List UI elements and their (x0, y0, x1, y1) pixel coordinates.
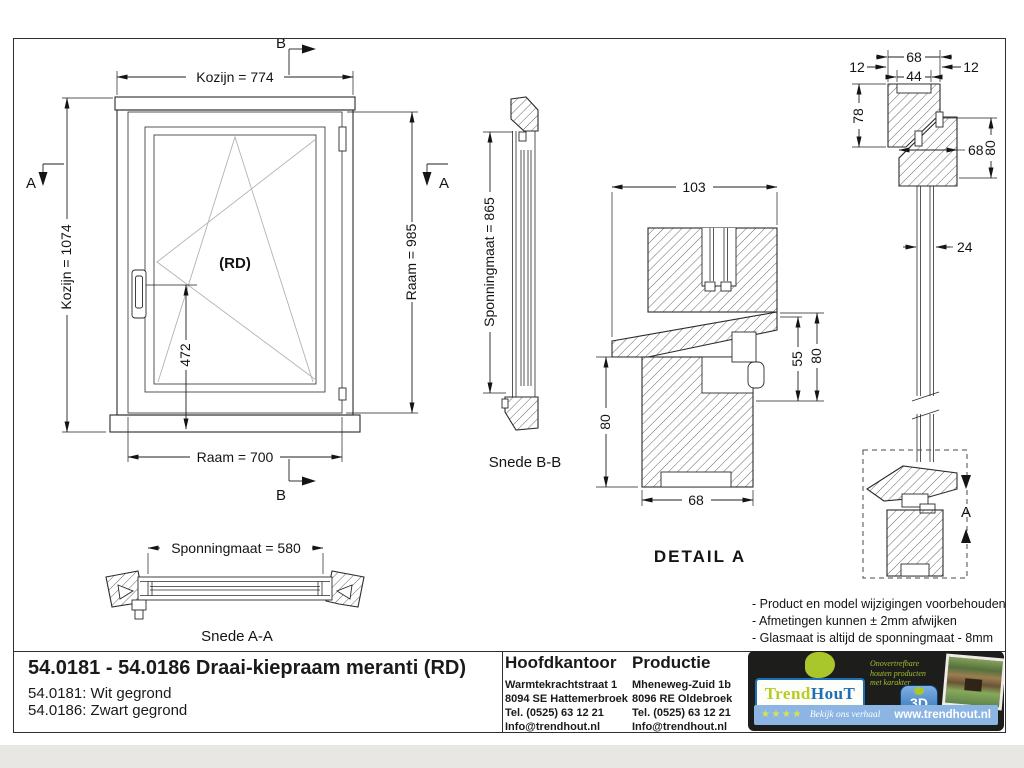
bottom-gray-strip (0, 745, 1024, 768)
production-phone: Tel. (0525) 63 12 21 (632, 706, 732, 720)
rating-stars-icon: ★★★★ (761, 710, 803, 720)
office-email: Info@trendhout.nl (505, 720, 628, 734)
office-city: 8094 SE Hattemerbroek (505, 692, 628, 706)
variant-wit-gegrond: 54.0181: Wit gegrond (28, 685, 171, 702)
drawing-sheet: (RD) Kozijn = 774 B Kozijn = 1074 (0, 0, 1024, 768)
wordmark-hout: HouT (811, 684, 856, 704)
logo-tagline: Onovertrefbare houten producten met kara… (870, 659, 950, 688)
tagline-line-1: Onovertrefbare (870, 659, 950, 669)
titleblock-divider (502, 651, 503, 733)
production-email: Info@trendhout.nl (632, 720, 732, 734)
production-street: Mheneweg-Zuid 1b (632, 678, 732, 692)
trendhout-logo-panel: TrendHouT Onovertrefbare houten producte… (748, 651, 1004, 731)
office-street: Warmtekrachtstraat 1 (505, 678, 628, 692)
gazebo-opening (965, 678, 982, 691)
production-address-block: Productie Mheneweg-Zuid 1b 8096 RE Oldeb… (632, 653, 732, 734)
variant-zwart-gegrond: 54.0186: Zwart gegrond (28, 702, 187, 719)
tree-icon (805, 652, 835, 678)
tagline-line-2: houten producten (870, 669, 950, 679)
drawing-title: 54.0181 - 54.0186 Draai-kiepraam meranti… (28, 657, 466, 680)
website-url: www.trendhout.nl (894, 709, 991, 721)
bar-script-text: Bekijk ons verhaal (810, 710, 881, 720)
office-address-block: Hoofdkantoor Warmtekrachtstraat 1 8094 S… (505, 653, 628, 734)
office-heading: Hoofdkantoor (505, 653, 628, 673)
production-heading: Productie (632, 653, 732, 673)
office-phone: Tel. (0525) 63 12 21 (505, 706, 628, 720)
sheet-border (13, 38, 1006, 733)
production-city: 8096 RE Oldebroek (632, 692, 732, 706)
logo-bottom-bar: ★★★★ Bekijk ons verhaal www.trendhout.nl (754, 705, 998, 725)
wordmark-trend: Trend (765, 684, 811, 704)
gazebo-photo (942, 653, 1004, 710)
badge-tree-icon (914, 687, 924, 695)
